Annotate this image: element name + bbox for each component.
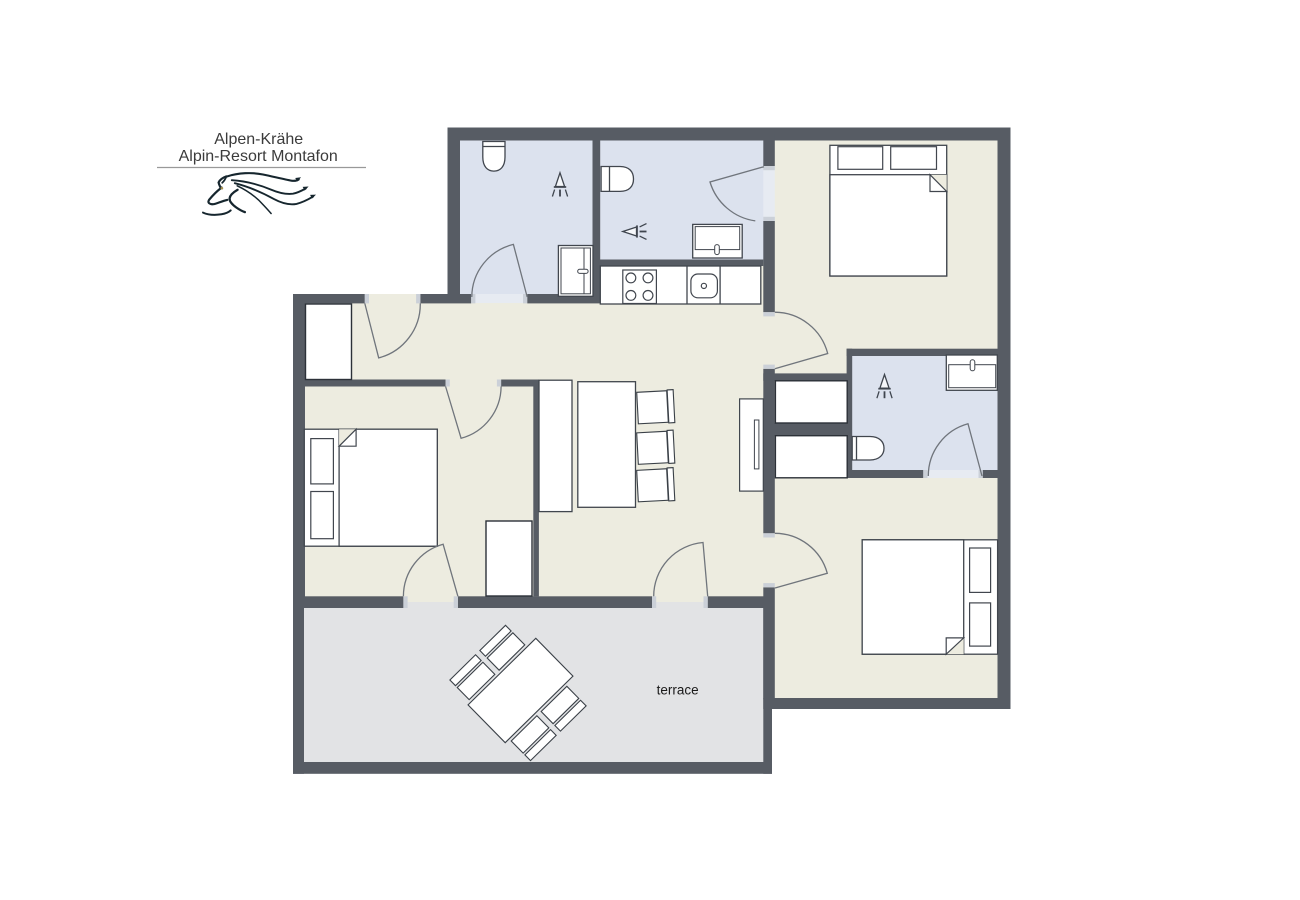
svg-text:terrace: terrace <box>657 683 699 698</box>
svg-text:Alpen-Krähe: Alpen-Krähe <box>214 131 303 148</box>
svg-text:Alpin-Resort Montafon: Alpin-Resort Montafon <box>179 148 338 165</box>
